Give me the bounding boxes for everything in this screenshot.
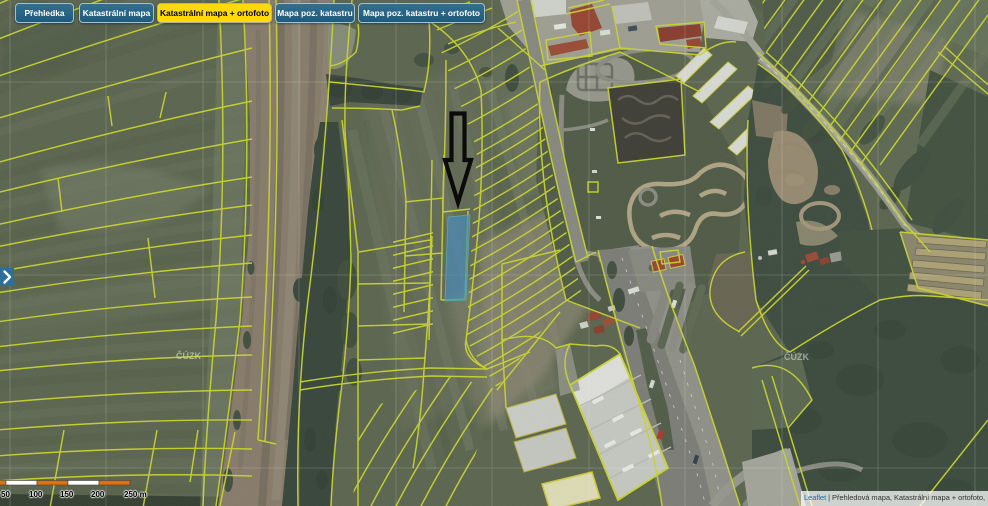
svg-text:ČÚZK: ČÚZK [176, 350, 201, 361]
svg-text:ČÚZK: ČÚZK [784, 351, 809, 362]
